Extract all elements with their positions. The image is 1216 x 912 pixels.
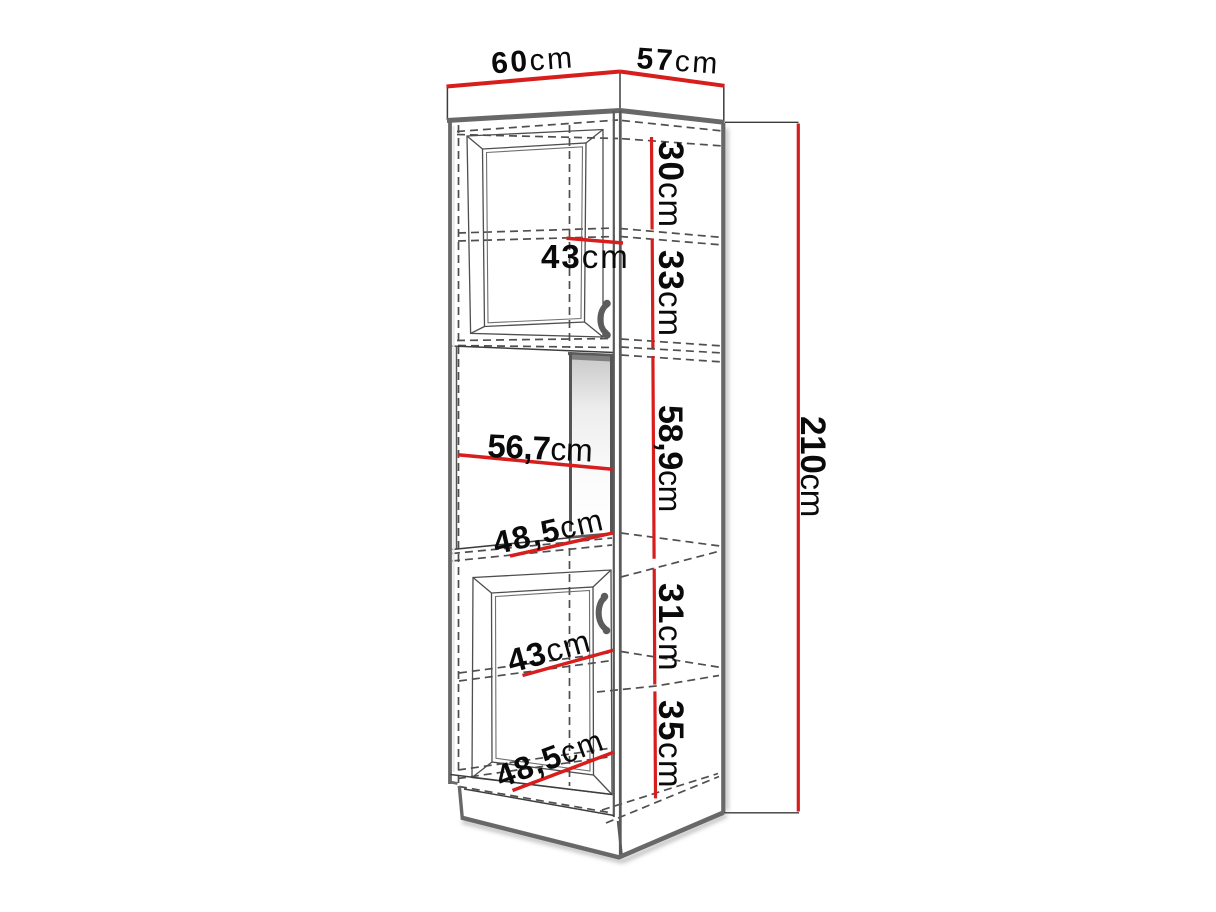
svg-text:30cm: 30cm bbox=[651, 141, 690, 228]
svg-text:210cm: 210cm bbox=[793, 416, 832, 517]
svg-text:43cm: 43cm bbox=[541, 238, 630, 275]
svg-text:57cm: 57cm bbox=[636, 42, 721, 81]
svg-text:31cm: 31cm bbox=[651, 583, 690, 672]
svg-text:58,9cm: 58,9cm bbox=[651, 405, 689, 512]
svg-text:56,7cm: 56,7cm bbox=[487, 427, 594, 469]
svg-text:35cm: 35cm bbox=[651, 700, 690, 789]
svg-text:33cm: 33cm bbox=[651, 250, 690, 337]
svg-text:60cm: 60cm bbox=[490, 41, 576, 80]
